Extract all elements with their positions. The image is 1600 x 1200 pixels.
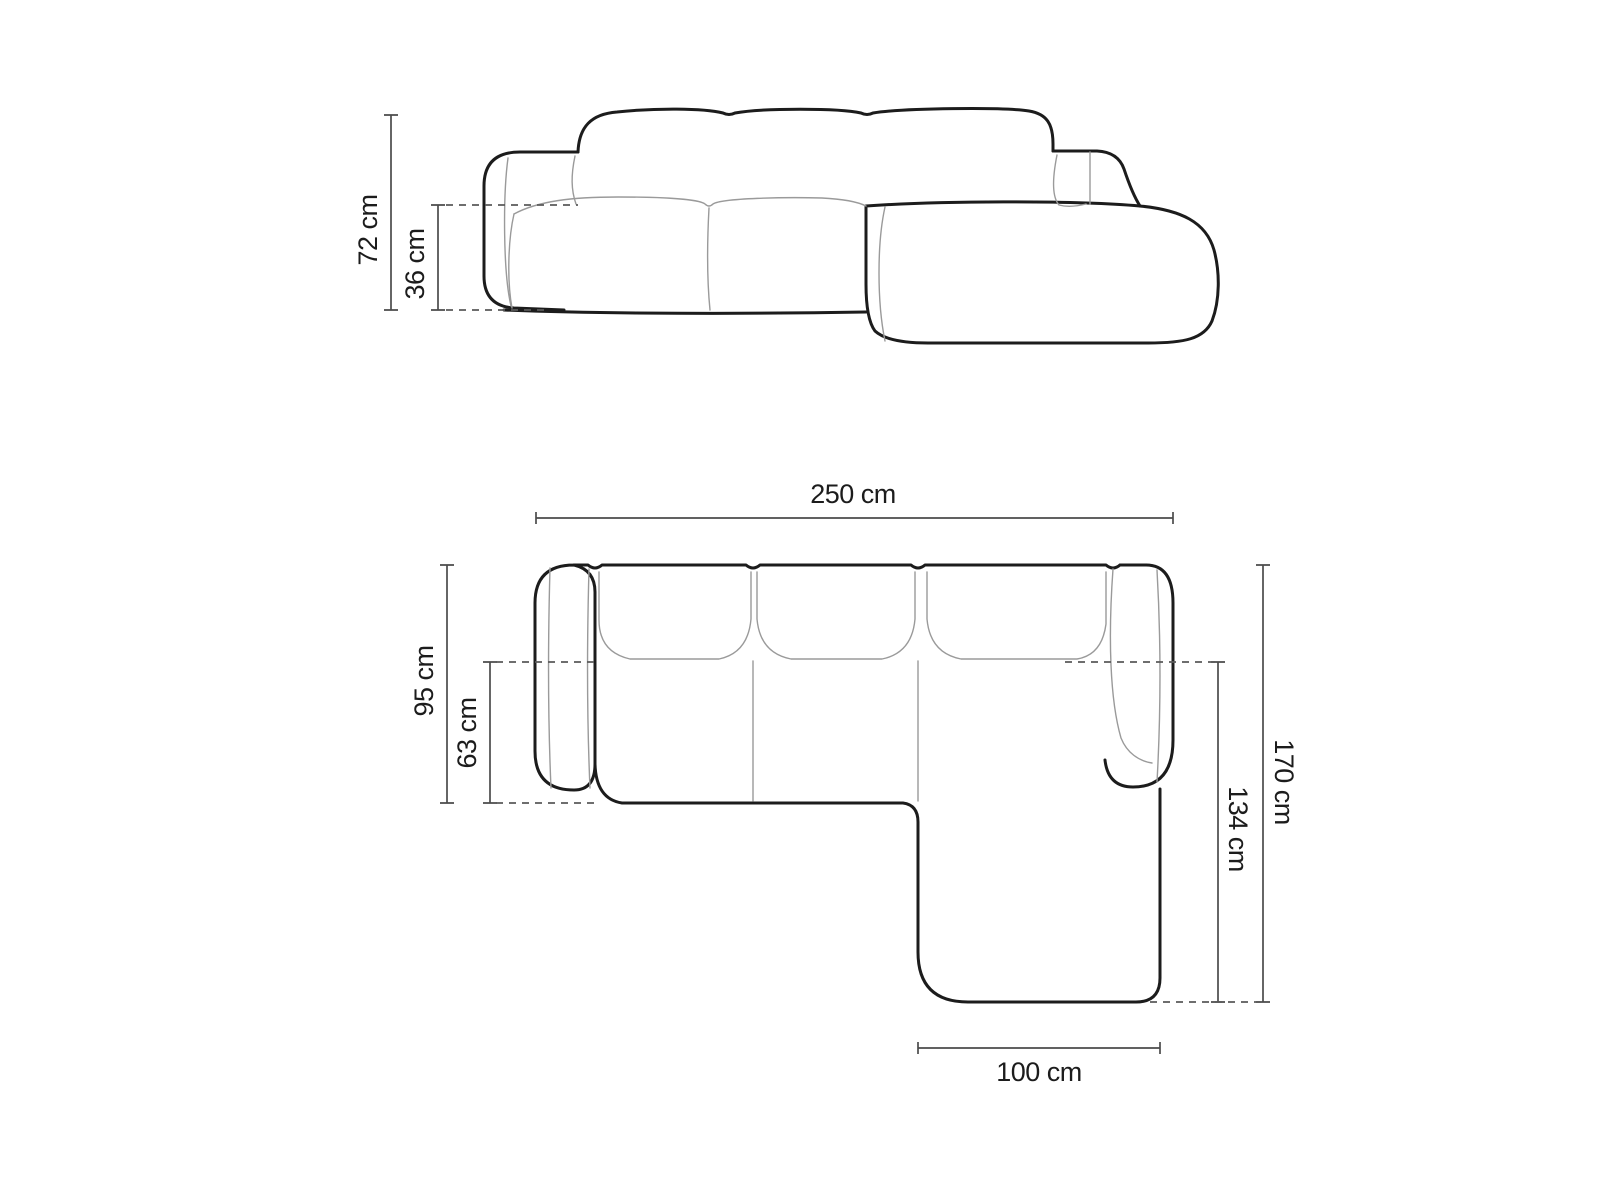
front-seat-left-seam — [509, 214, 514, 308]
top-chaise-width-label: 100 cm — [996, 1057, 1082, 1087]
top-overall-length-line — [1256, 565, 1270, 1002]
top-chaise-width-line — [918, 1042, 1160, 1054]
front-seat-height-line — [431, 205, 445, 310]
front-left-arm-outline — [484, 152, 578, 310]
front-chaise-outline — [866, 202, 1218, 343]
top-seat-depth-label: 63 cm — [452, 697, 482, 768]
top-overall-width-line — [536, 512, 1173, 524]
sofa-front-view — [484, 109, 1218, 343]
top-left-arm-seam-1 — [549, 568, 551, 788]
top-overall-width-dimension: 250 cm — [536, 479, 1173, 524]
top-seat-front-and-chaise-outline — [595, 764, 1160, 1002]
top-body-depth-label: 95 cm — [409, 645, 439, 716]
sofa-top-view — [535, 565, 1173, 1002]
top-seat-cushion-1 — [599, 572, 751, 659]
front-left-arm-inner-seam-2 — [572, 156, 576, 204]
top-left-arm-outline — [535, 565, 595, 790]
front-seat-center-seam — [708, 208, 710, 310]
front-seat-bottom-edge — [504, 310, 866, 313]
top-chaise-inner-length-dimension: 134 cm — [1065, 662, 1263, 1002]
top-body-depth-dimension: 95 cm — [409, 565, 454, 803]
front-overall-height-dimension: 72 cm — [353, 115, 398, 310]
top-seat-cushion-2 — [757, 572, 915, 659]
top-right-arm-inner-edge — [1110, 569, 1152, 763]
front-back-cushions-outline — [578, 109, 1053, 152]
top-seat-depth-line — [483, 662, 497, 803]
front-left-arm-inner-seam — [505, 158, 511, 306]
front-overall-height-label: 72 cm — [353, 194, 383, 265]
dimension-diagram: 72 cm 36 cm 250 cm — [0, 0, 1600, 1200]
top-chaise-inner-length-label: 134 cm — [1223, 786, 1253, 872]
front-right-arm-outline — [1053, 151, 1140, 206]
front-chaise-left-seam — [879, 207, 885, 341]
top-right-arm-seam — [1157, 570, 1160, 782]
front-seat-height-label: 36 cm — [400, 228, 430, 299]
front-right-arm-inner-seam — [1053, 155, 1086, 206]
top-left-arm-seam-2 — [588, 569, 590, 788]
top-seat-depth-dimension: 63 cm — [452, 662, 600, 803]
top-chaise-inner-length-line — [1211, 662, 1225, 1002]
top-back-edge — [574, 565, 1146, 568]
top-seat-cushion-3 — [927, 572, 1106, 659]
front-overall-height-line — [384, 115, 398, 310]
top-chaise-width-dimension: 100 cm — [918, 1042, 1160, 1087]
top-overall-width-label: 250 cm — [810, 479, 896, 509]
top-overall-length-dimension: 170 cm — [1256, 565, 1299, 1002]
top-right-arm-outline — [1105, 565, 1173, 787]
top-overall-length-label: 170 cm — [1269, 739, 1299, 825]
